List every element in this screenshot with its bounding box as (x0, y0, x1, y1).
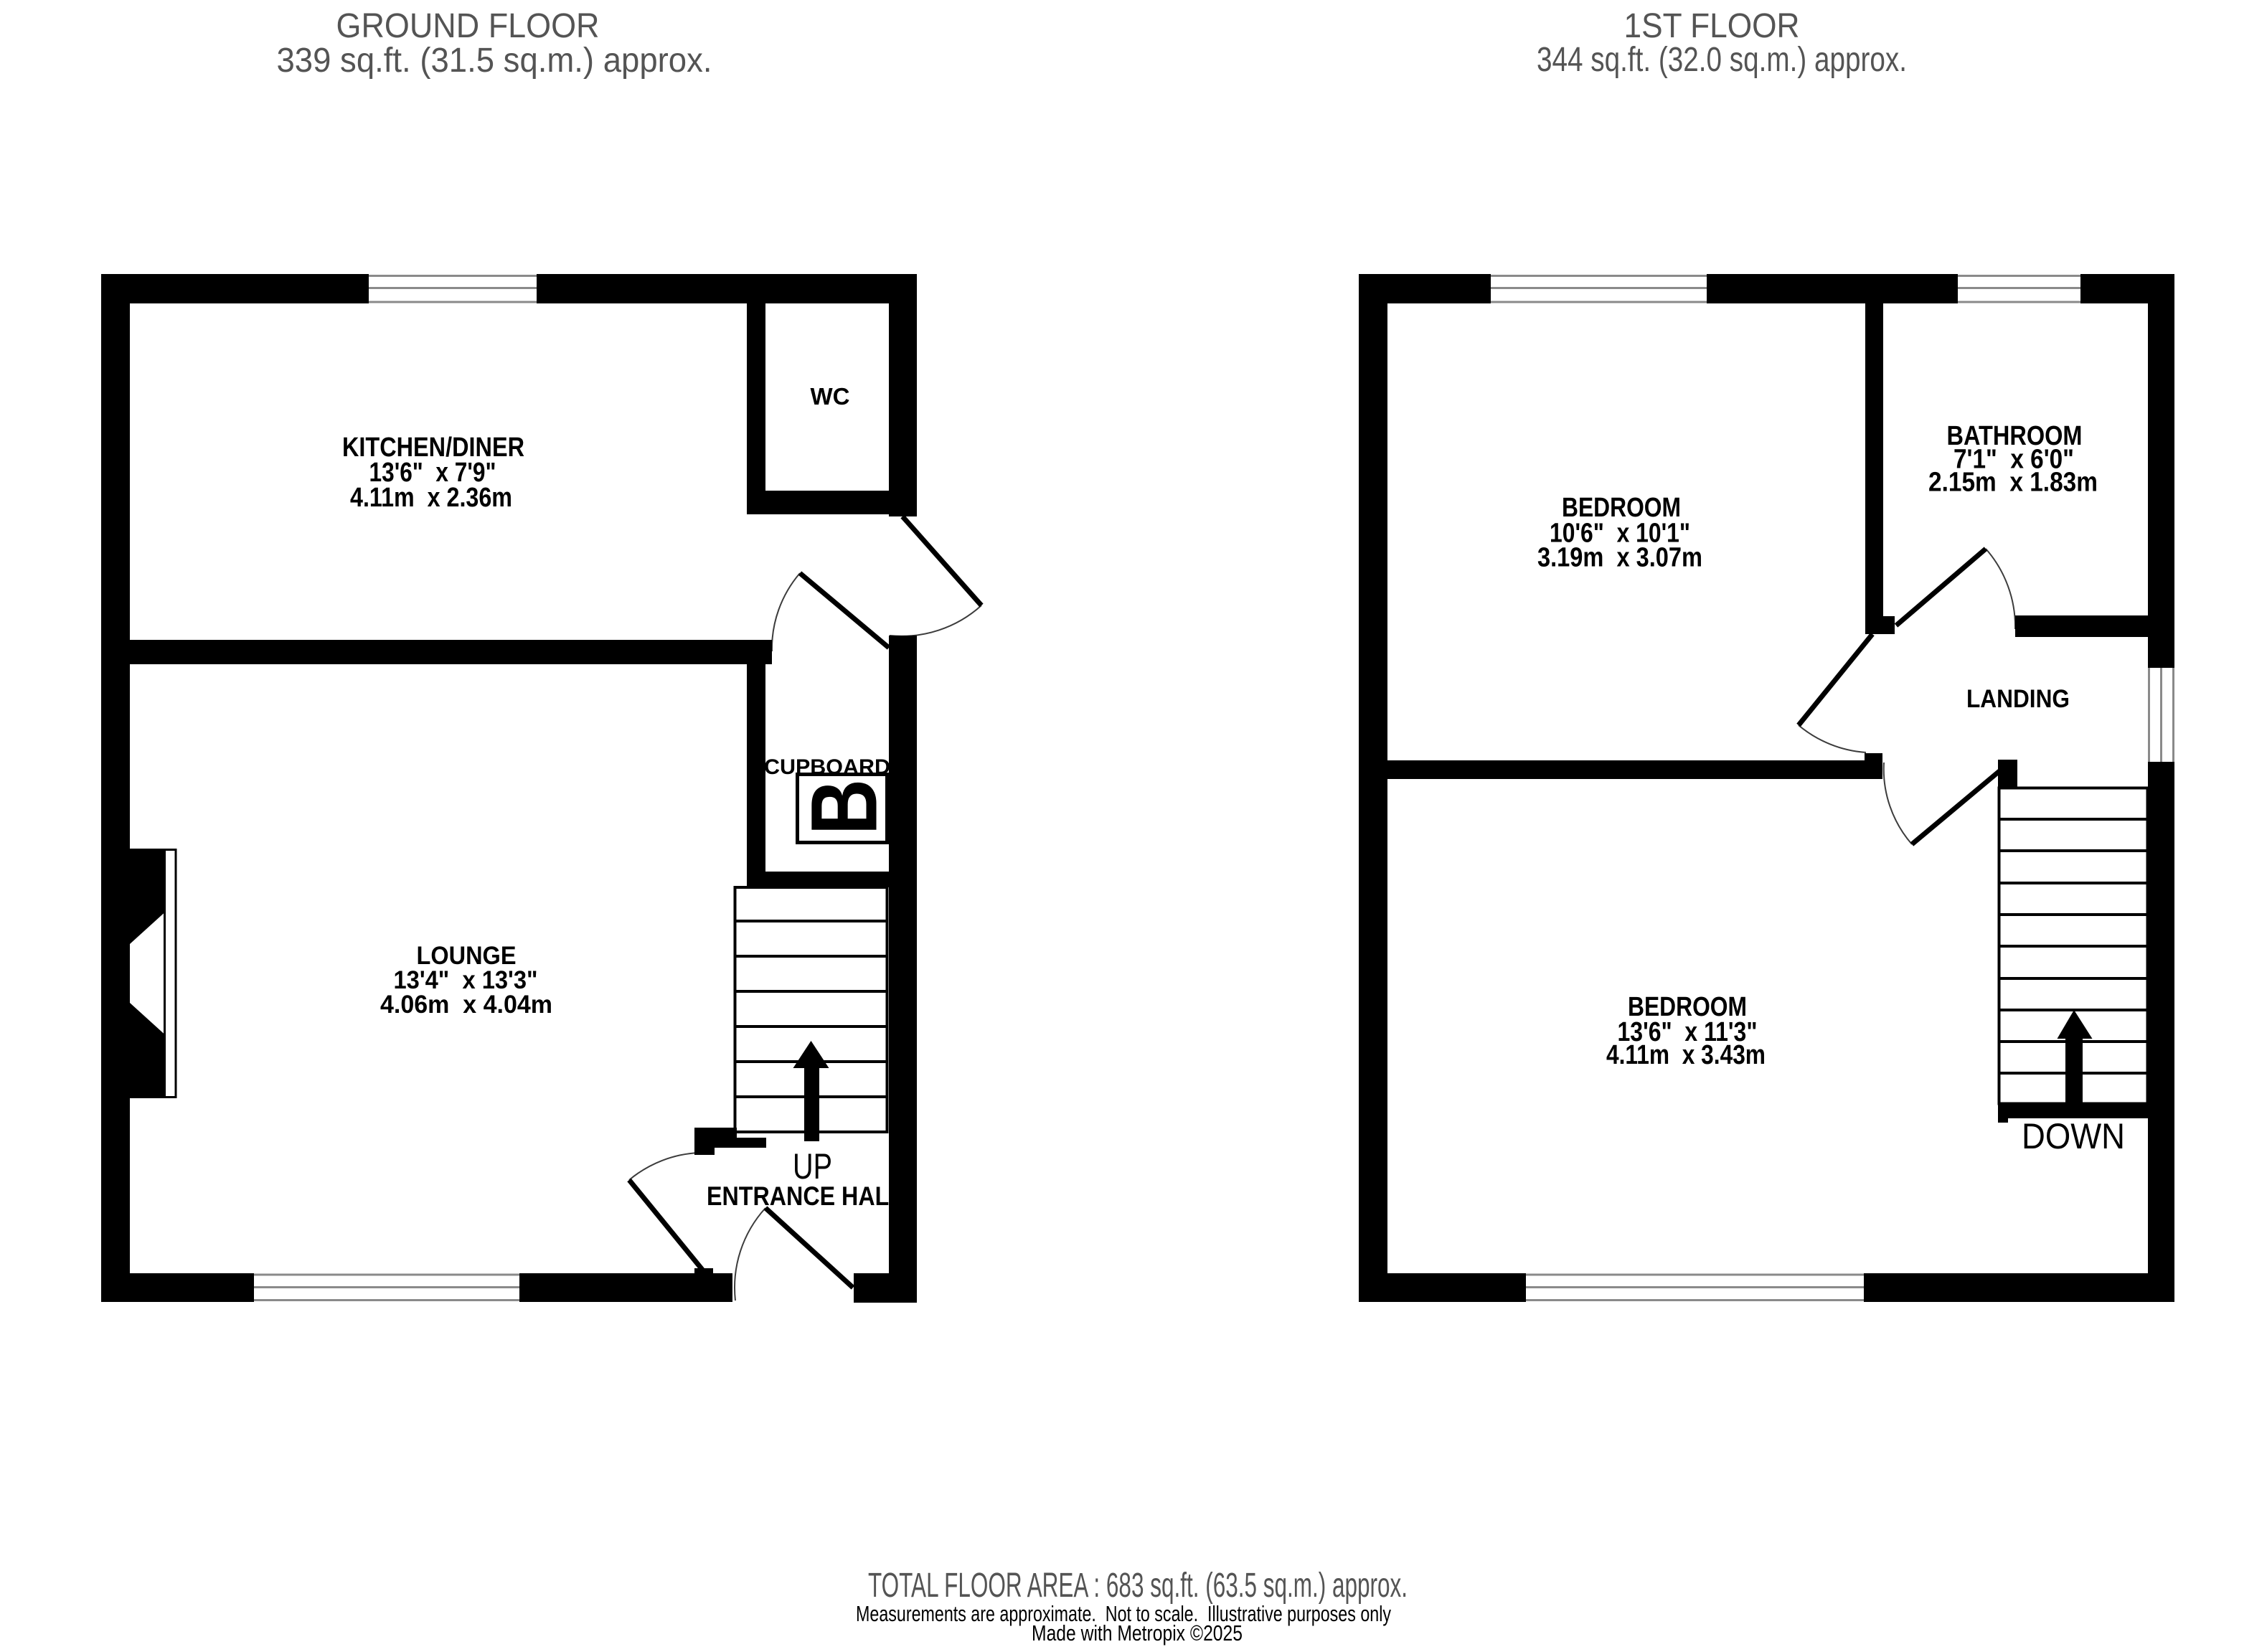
svg-text:GROUND FLOOR: GROUND FLOOR (336, 7, 600, 45)
svg-text:WC: WC (811, 383, 850, 410)
svg-text:UP: UP (793, 1146, 832, 1186)
svg-text:344 sq.ft. (32.0 sq.m.) approx: 344 sq.ft. (32.0 sq.m.) approx. (1537, 41, 1907, 79)
svg-text:2.15m x 1.83m: 2.15m x 1.83m (1928, 468, 2098, 498)
svg-text:TOTAL FLOOR AREA : 683 sq.ft.: TOTAL FLOOR AREA : 683 sq.ft. (63.5 sq.m… (868, 1567, 1408, 1605)
svg-text:LANDING: LANDING (1966, 685, 2070, 713)
svg-text:DOWN: DOWN (2022, 1116, 2125, 1156)
svg-text:4.06m x 4.04m: 4.06m x 4.04m (380, 991, 552, 1019)
svg-text:B: B (791, 779, 897, 835)
svg-text:1ST FLOOR: 1ST FLOOR (1624, 7, 1800, 45)
svg-text:339 sq.ft. (31.5 sq.m.) approx: 339 sq.ft. (31.5 sq.m.) approx. (277, 42, 712, 80)
svg-text:Made with Metropix ©2025: Made with Metropix ©2025 (1032, 1621, 1243, 1646)
svg-text:4.11m x 2.36m: 4.11m x 2.36m (350, 483, 512, 513)
svg-text:3.19m x 3.07m: 3.19m x 3.07m (1537, 543, 1702, 573)
svg-text:4.11m x 3.43m: 4.11m x 3.43m (1606, 1040, 1766, 1070)
